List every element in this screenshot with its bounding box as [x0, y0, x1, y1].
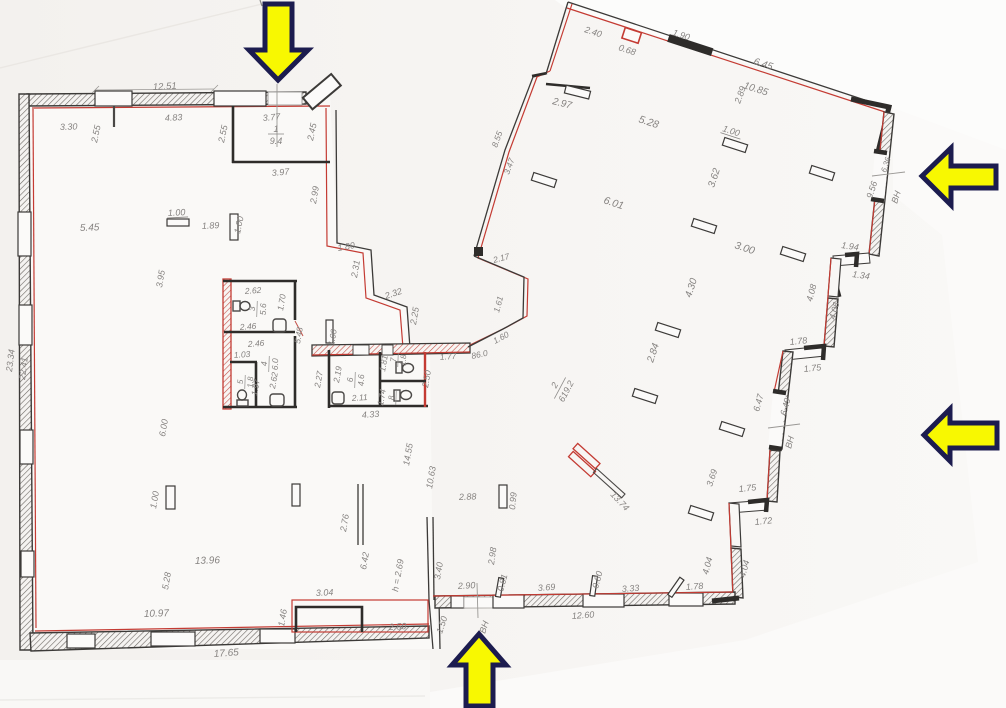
svg-text:3.69: 3.69	[537, 582, 555, 593]
svg-text:9.4: 9.4	[270, 136, 283, 146]
svg-text:4: 4	[259, 361, 269, 366]
svg-text:1.78: 1.78	[685, 581, 703, 592]
svg-text:1: 1	[273, 124, 278, 134]
svg-text:13.96: 13.96	[195, 555, 221, 567]
svg-text:2.50: 2.50	[388, 621, 407, 632]
svg-text:1.8: 1.8	[246, 376, 255, 388]
svg-text:1.00: 1.00	[168, 207, 186, 218]
svg-text:6.0: 6.0	[270, 358, 280, 370]
svg-text:4.83: 4.83	[165, 112, 183, 123]
svg-text:12.51: 12.51	[153, 81, 177, 93]
svg-text:3.33: 3.33	[621, 583, 639, 594]
svg-text:17.65: 17.65	[213, 647, 239, 660]
svg-text:6: 6	[345, 377, 355, 382]
svg-text:5.45: 5.45	[80, 222, 100, 234]
svg-text:3.30: 3.30	[60, 121, 78, 132]
svg-text:1.78: 1.78	[789, 335, 807, 347]
svg-text:3.04: 3.04	[316, 587, 334, 598]
svg-text:2.11: 2.11	[350, 392, 368, 403]
svg-text:10.97: 10.97	[144, 608, 170, 620]
svg-text:2.90: 2.90	[457, 580, 476, 591]
svg-text:1.03: 1.03	[233, 349, 250, 360]
svg-text:1.75: 1.75	[738, 482, 757, 494]
svg-text:3.77: 3.77	[262, 111, 281, 123]
svg-text:1.8: 1.8	[399, 354, 408, 366]
svg-text:12.60: 12.60	[571, 609, 594, 621]
svg-text:4.33: 4.33	[361, 409, 379, 420]
svg-text:4.6: 4.6	[356, 374, 366, 386]
svg-text:3.97: 3.97	[271, 166, 290, 178]
svg-text:0.99: 0.99	[507, 492, 519, 510]
svg-text:1.89: 1.89	[202, 220, 220, 231]
svg-text:2.62: 2.62	[243, 285, 261, 296]
svg-text:2.88: 2.88	[458, 491, 477, 502]
svg-text:3: 3	[247, 306, 257, 311]
svg-text:2.46: 2.46	[246, 338, 264, 349]
svg-text:1.77: 1.77	[439, 351, 456, 362]
svg-text:5.6: 5.6	[258, 303, 268, 315]
svg-text:1.75: 1.75	[803, 362, 822, 374]
svg-text:1.72: 1.72	[754, 515, 772, 527]
svg-text:2.46: 2.46	[238, 321, 256, 332]
